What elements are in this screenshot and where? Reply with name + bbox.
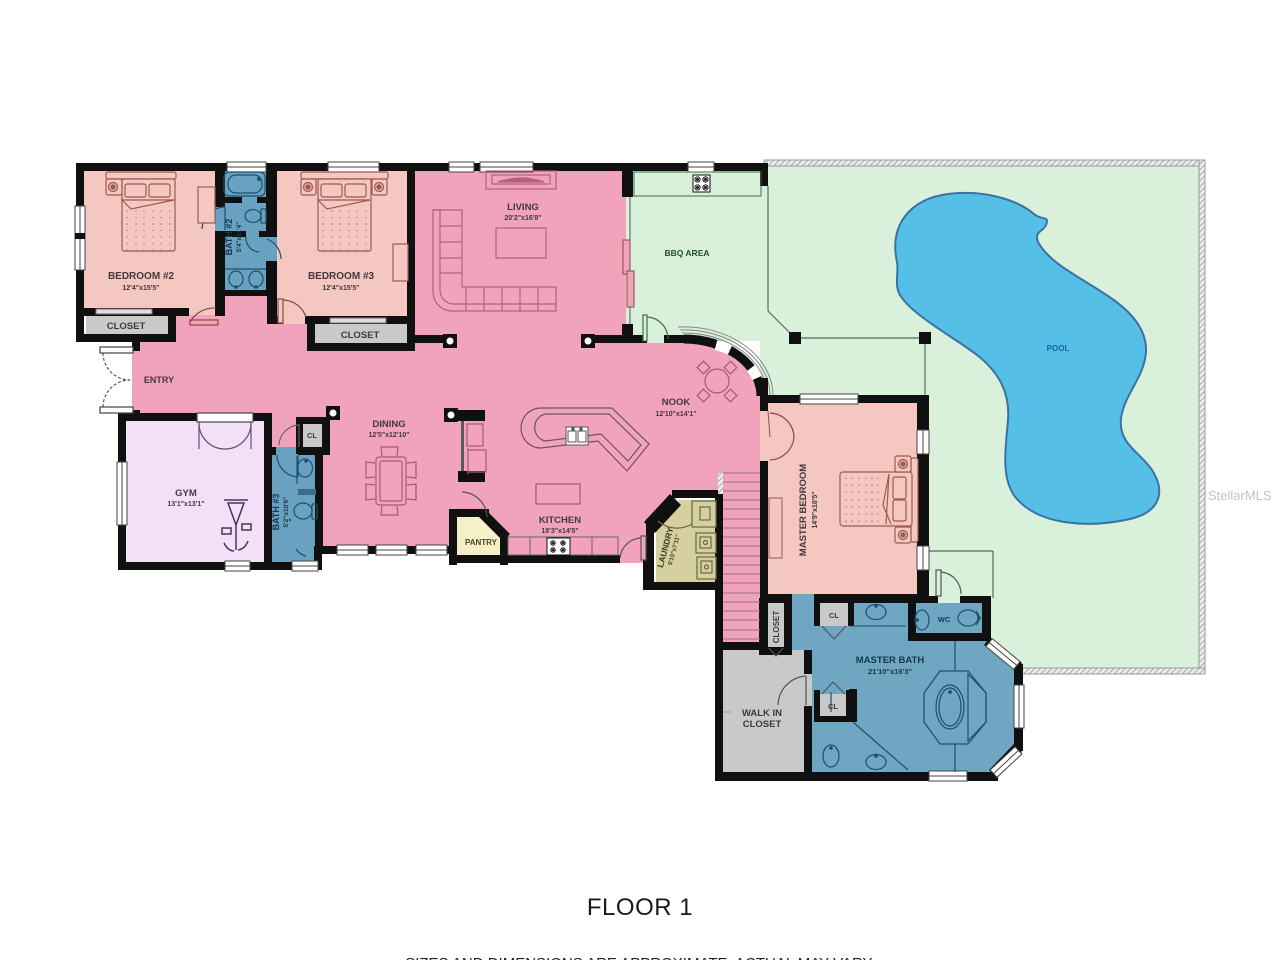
svg-text:CLOSET: CLOSET xyxy=(341,330,380,341)
svg-text:GYM: GYM xyxy=(175,488,197,499)
svg-text:12'10"x14'1": 12'10"x14'1" xyxy=(655,411,696,418)
svg-text:CLOSET: CLOSET xyxy=(743,719,782,730)
svg-text:CL: CL xyxy=(829,611,839,620)
svg-text:SIZES AND DIMENSIONS ARE APPRO: SIZES AND DIMENSIONS ARE APPROXIMATE, AC… xyxy=(405,955,875,960)
svg-text:StellarMLS: StellarMLS xyxy=(1208,488,1272,503)
svg-text:CL: CL xyxy=(307,431,317,440)
svg-text:DINING: DINING xyxy=(372,419,405,430)
svg-text:MASTER BEDROOM: MASTER BEDROOM xyxy=(798,464,809,556)
svg-text:18'3"x14'5": 18'3"x14'5" xyxy=(541,528,578,535)
svg-text:21'10"x16'3": 21'10"x16'3" xyxy=(868,667,912,676)
svg-text:12'4"x15'5": 12'4"x15'5" xyxy=(322,285,359,292)
svg-text:13'1"x13'1": 13'1"x13'1" xyxy=(167,501,204,508)
svg-text:WC: WC xyxy=(938,615,951,624)
svg-text:BATH #2: BATH #2 xyxy=(224,219,234,256)
svg-text:BEDROOM #3: BEDROOM #3 xyxy=(308,271,375,282)
svg-text:CLOSET: CLOSET xyxy=(772,611,781,644)
svg-text:LIVING: LIVING xyxy=(507,202,539,213)
svg-text:12'4"x15'5": 12'4"x15'5" xyxy=(122,285,159,292)
svg-text:5'4"x11'4": 5'4"x11'4" xyxy=(236,222,243,253)
svg-text:POOL: POOL xyxy=(1047,344,1070,353)
svg-text:FLOOR 1: FLOOR 1 xyxy=(587,894,693,921)
svg-text:WALK IN: WALK IN xyxy=(742,708,782,719)
svg-text:BATH #3: BATH #3 xyxy=(271,494,281,531)
svg-text:12'5"x12'10": 12'5"x12'10" xyxy=(368,432,409,439)
svg-text:CLOSET: CLOSET xyxy=(107,321,146,332)
svg-text:BEDROOM #2: BEDROOM #2 xyxy=(108,271,175,282)
svg-text:5'2"x10'6": 5'2"x10'6" xyxy=(283,497,290,528)
svg-text:ENTRY: ENTRY xyxy=(144,375,174,385)
svg-text:NOOK: NOOK xyxy=(662,397,691,408)
svg-text:14'9"x18'5": 14'9"x18'5" xyxy=(812,491,819,528)
svg-text:CL: CL xyxy=(828,702,838,711)
svg-text:KITCHEN: KITCHEN xyxy=(539,515,581,526)
svg-text:PANTRY: PANTRY xyxy=(465,538,498,547)
svg-text:BBQ AREA: BBQ AREA xyxy=(664,248,709,258)
svg-text:20'2"x16'8": 20'2"x16'8" xyxy=(504,215,541,222)
svg-text:MASTER BATH: MASTER BATH xyxy=(856,655,925,666)
